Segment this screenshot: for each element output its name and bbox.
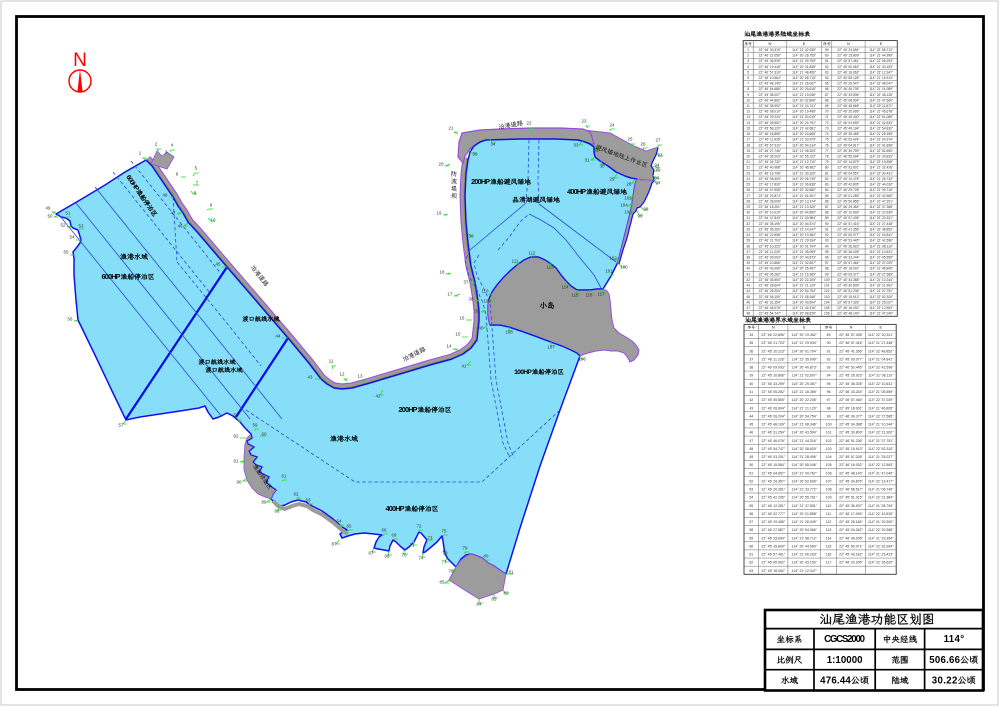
svg-text:114° 22' 54.832": 114° 22' 54.832" — [869, 127, 894, 131]
svg-text:104: 104 — [824, 300, 830, 304]
svg-text:13: 13 — [358, 374, 363, 379]
svg-text:22° 46' 53.424": 22° 46' 53.424" — [837, 138, 860, 142]
svg-text:77: 77 — [825, 149, 829, 153]
svg-text:114° 22' 51.089": 114° 22' 51.089" — [869, 115, 894, 119]
svg-text:70: 70 — [402, 553, 407, 558]
svg-text:7: 7 — [747, 82, 749, 86]
svg-text:10: 10 — [746, 98, 750, 102]
svg-text:22° 46' 03.376": 22° 46' 03.376" — [759, 48, 782, 52]
svg-text:22° 46' 53.445": 22° 46' 53.445" — [839, 366, 864, 370]
svg-text:12: 12 — [746, 110, 750, 114]
svg-text:114° 22' 20.321": 114° 22' 20.321" — [869, 216, 894, 220]
svg-text:22° 46' 29.357": 22° 46' 29.357" — [761, 479, 786, 483]
svg-text:69: 69 — [825, 104, 829, 108]
svg-text:22° 46' 02.777": 22° 46' 02.777" — [761, 512, 786, 516]
svg-text:22° 46' 15.584": 22° 46' 15.584" — [761, 463, 786, 467]
svg-text:71: 71 — [410, 543, 415, 548]
svg-text:114° 22' 42.596": 114° 22' 42.596" — [868, 366, 894, 370]
svg-text:73: 73 — [428, 536, 433, 541]
svg-text:97: 97 — [656, 181, 661, 186]
svg-text:22° 46' 35.203": 22° 46' 35.203" — [759, 155, 782, 159]
svg-text:89: 89 — [825, 216, 829, 220]
svg-text:73: 73 — [825, 127, 829, 131]
svg-text:114° 21' 44.316": 114° 21' 44.316" — [792, 439, 818, 443]
svg-text:116: 116 — [586, 293, 594, 298]
svg-text:33: 33 — [574, 143, 579, 148]
svg-text:22° 46' 33.244": 22° 46' 33.244" — [837, 256, 860, 260]
svg-text:114° 21' 30.320": 114° 21' 30.320" — [792, 171, 817, 175]
svg-text:46: 46 — [746, 300, 750, 304]
svg-text:22° 45' 05.550": 22° 45' 05.550" — [761, 398, 786, 402]
svg-text:22° 45' 36.937": 22° 45' 36.937" — [839, 504, 864, 508]
svg-text:114° 22' 42.596": 114° 22' 42.596" — [869, 239, 894, 243]
svg-text:22° 46' 20.206": 22° 46' 20.206" — [839, 561, 864, 565]
svg-text:114° 22' 48.128": 114° 22' 48.128" — [869, 93, 894, 97]
svg-text:22° 45' 00.062": 22° 45' 00.062" — [837, 65, 860, 69]
svg-text:114° 20' 24.665": 114° 20' 24.665" — [792, 132, 817, 136]
svg-text:22° 46' 20.281": 22° 46' 20.281" — [761, 488, 786, 492]
svg-text:47: 47 — [746, 306, 750, 310]
svg-text:114° 21' 45.324": 114° 21' 45.324" — [792, 149, 817, 153]
svg-text:22° 45' 10.693": 22° 45' 10.693" — [837, 211, 860, 215]
svg-text:79: 79 — [463, 546, 468, 551]
svg-text:22° 45' 55.128": 22° 45' 55.128" — [837, 76, 860, 80]
svg-text:114° 22' 11.571": 114° 22' 11.571" — [869, 104, 894, 108]
svg-text:114° 20' 08.629": 114° 20' 08.629" — [792, 447, 818, 451]
svg-text:34: 34 — [746, 233, 750, 237]
svg-text:22° 46' 12.281": 22° 46' 12.281" — [761, 504, 786, 508]
svg-text:22° 46' 11.835": 22° 46' 11.835" — [759, 138, 782, 142]
svg-text:22° 46' 04.557": 22° 46' 04.557" — [837, 171, 860, 175]
svg-text:114° 22' 48.852": 114° 22' 48.852" — [869, 227, 894, 231]
svg-text:22° 45' 41.356": 22° 45' 41.356" — [839, 349, 864, 353]
svg-text:114° 22' 32.994": 114° 22' 32.994" — [868, 545, 894, 549]
svg-text:92: 92 — [234, 434, 239, 439]
svg-text:114° 21' 37.831": 114° 21' 37.831" — [792, 504, 818, 508]
svg-text:5: 5 — [747, 70, 749, 74]
svg-text:105: 105 — [826, 463, 832, 467]
svg-text:22° 46' 38.992": 22° 46' 38.992" — [759, 104, 782, 108]
svg-text:1: 1 — [139, 151, 142, 156]
svg-text:50: 50 — [749, 463, 753, 467]
svg-text:60: 60 — [825, 54, 829, 58]
svg-text:22° 45' 57.464": 22° 45' 57.464" — [839, 398, 864, 402]
svg-text:11: 11 — [329, 359, 334, 364]
svg-text:22° 45' 34.876": 22° 45' 34.876" — [839, 479, 864, 483]
svg-text:22° 46' 26.204": 22° 46' 26.204" — [761, 414, 786, 418]
svg-text:110: 110 — [826, 504, 832, 508]
svg-text:36: 36 — [469, 234, 474, 239]
svg-text:22° 45' 00.077": 22° 45' 00.077" — [839, 358, 864, 362]
svg-text:2: 2 — [155, 142, 158, 147]
svg-text:111: 111 — [512, 259, 519, 264]
svg-text:114° 22' 00.974": 114° 22' 00.974" — [869, 138, 894, 142]
svg-text:22° 46' 09.377": 22° 46' 09.377" — [839, 414, 864, 418]
svg-text:22° 45' 48.109": 22° 45' 48.109" — [761, 423, 786, 427]
svg-text:31: 31 — [585, 158, 590, 163]
svg-text:114° 22' 10.631": 114° 22' 10.631" — [869, 250, 894, 254]
svg-text:15: 15 — [456, 332, 461, 337]
svg-text:101: 101 — [826, 431, 832, 435]
svg-text:22° 45' 10.866": 22° 45' 10.866" — [759, 261, 782, 265]
svg-text:45: 45 — [216, 262, 221, 267]
svg-text:39: 39 — [746, 261, 750, 265]
svg-text:114° 21' 44.316": 114° 21' 44.316" — [792, 306, 817, 310]
svg-text:22° 46' 23.694": 22° 46' 23.694" — [761, 536, 786, 540]
svg-text:41: 41 — [746, 272, 750, 276]
svg-text:56: 56 — [68, 317, 73, 322]
svg-text:22° 46' 54.686": 22° 46' 54.686" — [759, 87, 782, 91]
svg-text:105: 105 — [624, 196, 632, 201]
svg-text:22° 46' 22.896": 22° 46' 22.896" — [761, 333, 786, 337]
svg-text:114° 21' 25.027": 114° 21' 25.027" — [868, 455, 894, 459]
svg-text:22° 46' 26.204": 22° 46' 26.204" — [759, 289, 782, 293]
svg-text:22° 46' 58.517": 22° 46' 58.517" — [839, 488, 864, 492]
svg-text:114° 22' 27.585": 114° 22' 27.585" — [868, 414, 894, 418]
svg-text:88: 88 — [275, 509, 280, 514]
svg-text:81: 81 — [825, 171, 829, 175]
svg-text:55: 55 — [749, 504, 753, 508]
svg-text:89: 89 — [262, 500, 267, 505]
svg-text:114° 22' 06.293": 114° 22' 06.293" — [869, 59, 894, 63]
svg-text:114° 22' 10.631": 114° 22' 10.631" — [868, 382, 894, 386]
svg-text:96: 96 — [825, 256, 829, 260]
svg-text:114° 21' 29.934": 114° 21' 29.934" — [792, 239, 817, 243]
svg-text:114° 21' 35.099": 114° 21' 35.099" — [792, 358, 818, 362]
svg-text:114° 22' 52.320": 114° 22' 52.320" — [869, 295, 894, 299]
svg-text:22° 46' 17.830": 22° 46' 17.830" — [759, 183, 782, 187]
svg-text:30: 30 — [600, 164, 605, 169]
svg-text:82: 82 — [504, 591, 509, 596]
svg-text:26: 26 — [746, 188, 750, 192]
svg-text:114° 21' 42.633": 114° 21' 42.633" — [869, 121, 894, 125]
svg-text:22° 45' 26.732": 22° 45' 26.732" — [759, 160, 782, 164]
svg-text:114° 20' 43.504": 114° 20' 43.504" — [792, 300, 817, 304]
svg-text:43: 43 — [308, 375, 313, 380]
svg-text:100HP: 100HP — [514, 369, 532, 376]
svg-text:114° 20' 43.504": 114° 20' 43.504" — [792, 431, 818, 435]
svg-text:114° 20' 32.680": 114° 20' 32.680" — [792, 188, 817, 192]
svg-text:34: 34 — [491, 142, 496, 147]
svg-text:66: 66 — [382, 528, 387, 533]
svg-text:43: 43 — [749, 406, 753, 410]
svg-text:22° 46' 31.254": 22° 46' 31.254" — [759, 300, 782, 304]
svg-text:34: 34 — [749, 333, 753, 337]
svg-text:22° 46' 09.093": 22° 46' 09.093" — [759, 256, 782, 260]
svg-text:52: 52 — [749, 479, 753, 483]
svg-text:22° 45' 48.140": 22° 45' 48.140" — [837, 312, 860, 316]
svg-text:N: N — [772, 326, 775, 330]
svg-text:22° 45' 54.747": 22° 45' 54.747" — [759, 312, 782, 316]
svg-text:22° 46' 00.062": 22° 46' 00.062" — [761, 561, 786, 565]
svg-text:114° 20' 24.791": 114° 20' 24.791" — [792, 121, 817, 125]
svg-text:22° 46' 29.224": 22° 46' 29.224" — [759, 115, 782, 119]
svg-text:108: 108 — [505, 330, 513, 335]
svg-text:114° 21' 35.099": 114° 21' 35.099" — [792, 250, 817, 254]
svg-text:114° 22' 58.712": 114° 22' 58.712" — [869, 48, 894, 52]
svg-text:22° 45' 08.010": 22° 45' 08.010" — [759, 110, 782, 114]
svg-text:87: 87 — [332, 542, 337, 547]
svg-text:114° 21' 27.448": 114° 21' 27.448" — [869, 222, 894, 226]
svg-text:103: 103 — [824, 295, 830, 299]
svg-text:75: 75 — [825, 138, 829, 142]
svg-text:22° 45' 38.007": 22° 45' 38.007" — [759, 93, 782, 97]
svg-text:72: 72 — [417, 524, 422, 529]
svg-text:110: 110 — [482, 289, 490, 294]
svg-text:22° 46' 47.843": 22° 46' 47.843" — [759, 216, 782, 220]
svg-text:48: 48 — [163, 193, 168, 198]
svg-text:9: 9 — [210, 203, 213, 208]
svg-text:22° 45' 04.657": 22° 45' 04.657" — [761, 471, 786, 475]
svg-text:E: E — [879, 326, 882, 330]
svg-text:19: 19 — [437, 211, 442, 216]
svg-text:114° 21' 05.559": 114° 21' 05.559" — [869, 256, 894, 260]
svg-text:22° 45' 34.388": 22° 45' 34.388" — [837, 278, 860, 282]
svg-text:43: 43 — [746, 284, 750, 288]
svg-text:62: 62 — [749, 561, 753, 565]
svg-text:114° 21' 41.898": 114° 21' 41.898" — [869, 143, 894, 147]
svg-text:114° 21' 10.244": 114° 21' 10.244" — [869, 278, 894, 282]
svg-text:30.22: 30.22 — [932, 675, 958, 686]
svg-text:22° 46' 28.604": 22° 46' 28.604" — [759, 284, 782, 288]
svg-text:102: 102 — [609, 256, 617, 261]
svg-text:114° 20' 06.749": 114° 20' 06.749" — [792, 177, 817, 181]
svg-text:400HP: 400HP — [567, 188, 586, 196]
svg-text:50: 50 — [48, 214, 53, 219]
svg-text:77: 77 — [442, 560, 447, 565]
svg-text:22° 45' 53.601": 22° 45' 53.601" — [837, 166, 860, 170]
svg-text:16: 16 — [460, 316, 465, 321]
svg-text:22° 45' 42.805": 22° 45' 42.805" — [837, 183, 860, 187]
svg-text:16: 16 — [746, 132, 750, 136]
svg-text:N: N — [847, 42, 850, 46]
svg-text:114° 21' 06.293": 114° 21' 06.293" — [792, 553, 818, 557]
svg-text:115: 115 — [826, 545, 832, 549]
svg-text:37: 37 — [464, 280, 469, 285]
svg-text:506.66: 506.66 — [929, 655, 960, 666]
svg-text:22° 46' 27.587": 22° 46' 27.587" — [761, 528, 786, 532]
svg-text:114° 21' 22.939": 114° 21' 22.939" — [869, 211, 894, 215]
svg-text:22° 45' 28.184": 22° 45' 28.184" — [839, 520, 864, 524]
svg-text:78: 78 — [825, 155, 829, 159]
svg-text:97: 97 — [825, 261, 829, 265]
svg-text:22° 46' 43.299": 22° 46' 43.299" — [759, 267, 782, 271]
svg-text:22° 45' 43.182": 22° 45' 43.182" — [839, 553, 864, 557]
svg-text:42: 42 — [749, 398, 753, 402]
svg-text:59: 59 — [253, 423, 258, 428]
svg-text:22° 45' 50.071": 22° 45' 50.071" — [839, 545, 864, 549]
svg-text:63: 63 — [825, 70, 829, 74]
svg-text:24: 24 — [610, 123, 615, 128]
svg-text:67: 67 — [825, 93, 829, 97]
svg-text:114° 21' 10.320": 114° 21' 10.320" — [792, 205, 817, 209]
svg-text:35: 35 — [746, 239, 750, 243]
svg-text:22° 46' 09.377": 22° 46' 09.377" — [837, 272, 860, 276]
svg-text:104: 104 — [620, 203, 628, 208]
svg-text:114° 21' 37.751": 114° 21' 37.751" — [868, 439, 894, 443]
svg-text:91: 91 — [825, 227, 829, 231]
svg-text:114° 20' 44.999": 114° 20' 44.999" — [792, 545, 818, 549]
svg-text:22° 45' 35.260": 22° 45' 35.260" — [759, 227, 782, 231]
svg-text:114: 114 — [826, 536, 832, 540]
svg-text:105: 105 — [824, 306, 830, 310]
svg-text:29: 29 — [746, 205, 750, 209]
svg-text:200HP: 200HP — [399, 406, 418, 414]
svg-text:114° 21' 27.448": 114° 21' 27.448" — [868, 341, 894, 345]
svg-text:116: 116 — [826, 553, 832, 557]
svg-text:114° 20' 46.962": 114° 20' 46.962" — [792, 166, 817, 170]
svg-text:114° 21' 26.949": 114° 21' 26.949" — [792, 520, 818, 524]
svg-text:22° 45' 58.120": 22° 45' 58.120" — [759, 127, 782, 131]
svg-text:51: 51 — [66, 211, 71, 216]
svg-text:103: 103 — [826, 447, 832, 451]
svg-text:114° 21' 37.751": 114° 21' 37.751" — [869, 289, 894, 293]
svg-text:22° 46' 05.282": 22° 46' 05.282" — [761, 390, 786, 394]
svg-text:114° 22' 12.563": 114° 22' 12.563" — [869, 306, 894, 310]
svg-text:114° 20' 08.629": 114° 20' 08.629" — [792, 312, 817, 316]
svg-text:14: 14 — [447, 344, 452, 349]
svg-text:91: 91 — [827, 349, 831, 353]
svg-text:14: 14 — [746, 121, 750, 125]
svg-text:89: 89 — [827, 333, 831, 337]
svg-text:22° 46' 27.746": 22° 46' 27.746" — [759, 149, 782, 153]
svg-text:22° 46' 40.988": 22° 46' 40.988" — [759, 166, 782, 170]
svg-text:22° 45' 04.342": 22° 45' 04.342" — [839, 528, 864, 532]
svg-text:22: 22 — [746, 166, 750, 170]
svg-text:81: 81 — [509, 570, 514, 575]
svg-text:22° 45' 10.866": 22° 45' 10.866" — [761, 374, 786, 378]
svg-text:92: 92 — [825, 233, 829, 237]
svg-text:1: 1 — [747, 48, 749, 52]
svg-text:114° 21' 24.741": 114° 21' 24.741" — [792, 104, 817, 108]
svg-text:114° 21' 47.040": 114° 21' 47.040" — [868, 471, 894, 475]
svg-text:102: 102 — [826, 439, 832, 443]
svg-text:76: 76 — [443, 551, 448, 556]
svg-text:65: 65 — [825, 82, 829, 86]
svg-text:53: 53 — [79, 224, 84, 229]
svg-text:22° 45' 00.077": 22° 45' 00.077" — [837, 233, 860, 237]
svg-text:114° 21' 04.841": 114° 21' 04.841" — [868, 358, 894, 362]
svg-text:22° 46' 46.076": 22° 46' 46.076" — [759, 306, 782, 310]
svg-text:114°: 114° — [944, 634, 965, 645]
svg-text:22° 46' 16.856": 22° 46' 16.856" — [759, 132, 782, 136]
svg-text:23: 23 — [746, 171, 750, 175]
svg-text:114° 21' 47.040": 114° 21' 47.040" — [869, 312, 894, 316]
svg-text:114° 21' 32.426": 114° 21' 32.426" — [869, 166, 894, 170]
svg-text:22° 45' 34.388": 22° 45' 34.388" — [839, 423, 864, 427]
svg-text:114° 21' 47.660": 114° 21' 47.660" — [869, 98, 894, 102]
svg-text:22° 46' 28.604": 22° 46' 28.604" — [761, 406, 786, 410]
svg-text:70: 70 — [825, 110, 829, 114]
svg-text:93: 93 — [827, 366, 831, 370]
svg-text:114° 22' 52.650": 114° 22' 52.650" — [869, 149, 894, 153]
svg-text:22° 46' 18.251": 22° 46' 18.251" — [759, 205, 782, 209]
svg-text:114° 21' 28.906": 114° 21' 28.906" — [792, 455, 818, 459]
svg-text:63: 63 — [306, 498, 311, 503]
svg-text:22° 45' 57.326": 22° 45' 57.326" — [837, 300, 860, 304]
svg-text:22° 46' 43.299": 22° 46' 43.299" — [761, 382, 786, 386]
svg-text:114° 20' 55.761": 114° 20' 55.761" — [792, 496, 818, 500]
svg-text:44: 44 — [746, 289, 750, 293]
svg-text:99: 99 — [827, 414, 831, 418]
svg-text:22° 45' 50.856": 22° 45' 50.856" — [837, 199, 860, 203]
svg-text:39: 39 — [475, 309, 480, 314]
svg-text:114° 22' 20.321": 114° 22' 20.321" — [868, 333, 894, 337]
svg-text:84: 84 — [477, 602, 482, 607]
svg-text:93: 93 — [825, 239, 829, 243]
svg-text:114° 21' 33.772": 114° 21' 33.772" — [792, 488, 818, 492]
svg-text:114° 20' 25.457": 114° 20' 25.457" — [792, 267, 817, 271]
svg-text:22° 45' 45.400": 22° 45' 45.400" — [837, 115, 860, 119]
svg-text:114° 22' 21.384": 114° 22' 21.384" — [868, 496, 894, 500]
svg-text:22° 45' 41.356": 22° 45' 41.356" — [837, 227, 860, 231]
svg-text:22° 46' 57.416": 22° 46' 57.416" — [839, 341, 864, 345]
svg-text:22° 46' 04.893": 22° 46' 04.893" — [837, 121, 860, 125]
svg-text:114° 21' 08.110": 114° 21' 08.110" — [869, 244, 894, 248]
svg-text:22° 45' 15.913": 22° 45' 15.913" — [839, 447, 864, 451]
svg-text:114° 22' 37.029": 114° 22' 37.029" — [869, 261, 894, 265]
svg-text:85: 85 — [440, 580, 445, 585]
svg-text:24: 24 — [746, 177, 750, 181]
svg-text:22° 46' 21.703": 22° 46' 21.703" — [761, 341, 786, 345]
svg-text:22° 45' 08.409": 22° 45' 08.409" — [759, 177, 782, 181]
svg-text:112: 112 — [529, 251, 537, 256]
svg-text:62: 62 — [294, 492, 299, 497]
svg-text:86: 86 — [825, 199, 829, 203]
svg-text:27: 27 — [656, 138, 661, 143]
svg-text:114° 22' 30.431": 114° 22' 30.431" — [869, 171, 894, 175]
svg-text:90: 90 — [827, 341, 831, 345]
svg-text:22° 45' 25.547": 22° 45' 25.547" — [837, 82, 860, 86]
svg-text:E: E — [880, 42, 883, 46]
svg-text:54: 54 — [749, 496, 753, 500]
svg-text:8: 8 — [747, 87, 749, 91]
svg-text:4: 4 — [747, 65, 749, 69]
svg-text:114° 22' 35.620": 114° 22' 35.620" — [868, 561, 894, 565]
svg-text:22° 45' 48.109": 22° 45' 48.109" — [759, 295, 782, 299]
svg-text:114° 21' 29.934": 114° 21' 29.934" — [792, 341, 818, 345]
svg-text:117: 117 — [826, 561, 832, 565]
svg-text:114° 21' 26.067": 114° 21' 26.067" — [792, 82, 817, 86]
svg-text:25: 25 — [746, 183, 750, 187]
svg-text:N: N — [768, 42, 771, 46]
svg-text:114° 20' 55.046": 114° 20' 55.046" — [792, 463, 818, 467]
svg-text:114° 21' 29.300": 114° 21' 29.300" — [868, 520, 894, 524]
svg-text:60: 60 — [262, 432, 267, 437]
svg-text:82: 82 — [825, 177, 829, 181]
svg-text:22° 45' 42.295": 22° 45' 42.295" — [761, 496, 786, 500]
svg-text:22° 45' 51.015": 22° 45' 51.015" — [839, 496, 864, 500]
svg-text:22° 46' 33.244": 22° 46' 33.244" — [839, 390, 864, 394]
svg-text:114° 20' 40.873": 114° 20' 40.873" — [792, 256, 817, 260]
svg-text:114° 20' 22.205": 114° 20' 22.205" — [792, 398, 818, 402]
svg-text:114° 21' 08.110": 114° 21' 08.110" — [868, 374, 894, 378]
svg-text:5: 5 — [195, 166, 198, 171]
svg-text:13: 13 — [746, 115, 750, 119]
svg-text:114° 20' 04.850": 114° 20' 04.850" — [792, 211, 817, 215]
svg-text:114° 21' 48.450": 114° 21' 48.450" — [792, 70, 817, 74]
svg-text:114° 22' 13.417": 114° 22' 13.417" — [868, 479, 894, 483]
svg-text:114° 20' 54.066": 114° 20' 54.066" — [792, 528, 818, 532]
svg-text:600HP: 600HP — [102, 273, 121, 281]
svg-text:78: 78 — [449, 569, 454, 574]
svg-text:41: 41 — [462, 364, 467, 369]
svg-text:114° 20' 52.699": 114° 20' 52.699" — [792, 479, 818, 483]
svg-text:22° 45' 26.923": 22° 45' 26.923" — [837, 244, 860, 248]
svg-text:94: 94 — [825, 244, 829, 248]
svg-text:22° 45' 30.799": 22° 45' 30.799" — [837, 149, 860, 153]
svg-text:114° 22' 19.558": 114° 22' 19.558" — [869, 160, 894, 164]
